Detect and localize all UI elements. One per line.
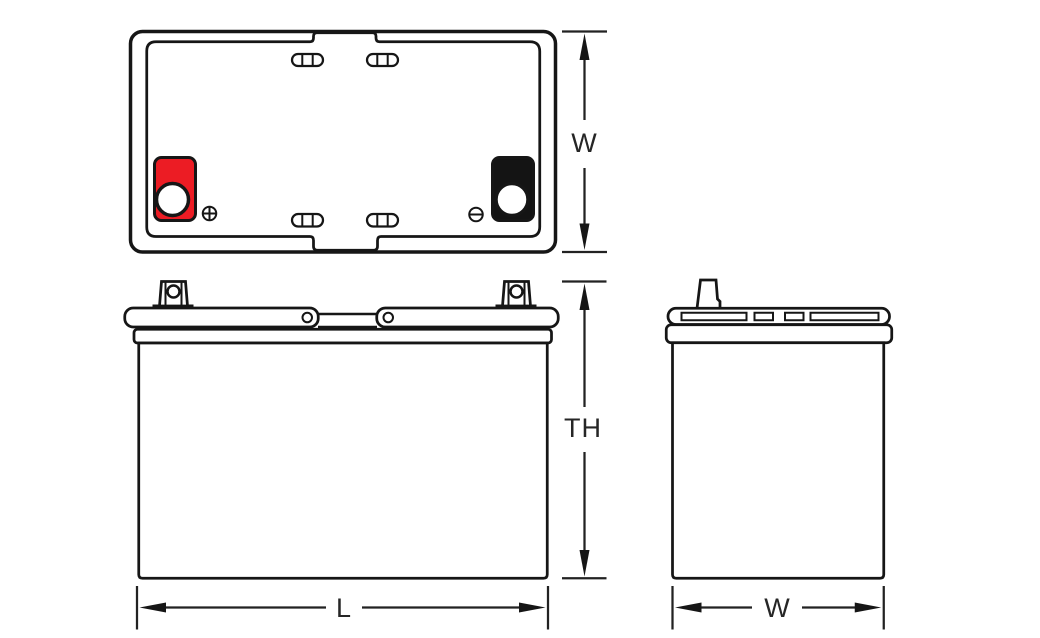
front-body	[139, 343, 548, 578]
side-terminal-post	[697, 280, 720, 309]
dimension-label-l: L	[336, 593, 352, 623]
arrowhead-up	[580, 34, 590, 61]
side-lid	[668, 308, 890, 324]
arrowhead-right	[519, 603, 546, 613]
positive-terminal-port	[157, 184, 189, 216]
front-right-terminal	[496, 282, 537, 310]
positive-terminal	[155, 158, 196, 221]
dimension-l: L	[137, 586, 548, 630]
arrowhead-right	[855, 603, 882, 613]
positive-symbol	[203, 207, 217, 221]
arrowhead-left	[675, 603, 702, 613]
top-view	[131, 32, 556, 253]
dimension-th: TH	[562, 282, 607, 579]
diagram-svg: W TH	[0, 0, 1040, 638]
dimension-label-th: TH	[564, 413, 602, 443]
arrowhead-down	[580, 224, 590, 251]
battery-dimension-drawing: W TH	[0, 0, 1040, 638]
arrowhead-up	[580, 284, 590, 311]
dimension-label-w-side: W	[764, 593, 790, 623]
negative-terminal-port	[496, 184, 528, 216]
front-view	[125, 282, 559, 579]
front-lid	[125, 308, 559, 327]
dimension-w-side: W	[673, 586, 884, 630]
dimension-w-top: W	[562, 32, 607, 253]
dimension-label-w-top: W	[571, 128, 597, 158]
side-body	[673, 343, 884, 579]
side-rim	[666, 325, 892, 343]
negative-terminal	[493, 158, 534, 221]
front-left-terminal	[153, 282, 194, 310]
side-view	[666, 280, 892, 578]
front-rim	[134, 329, 552, 343]
arrowhead-left	[140, 603, 167, 613]
arrowhead-down	[580, 550, 590, 577]
